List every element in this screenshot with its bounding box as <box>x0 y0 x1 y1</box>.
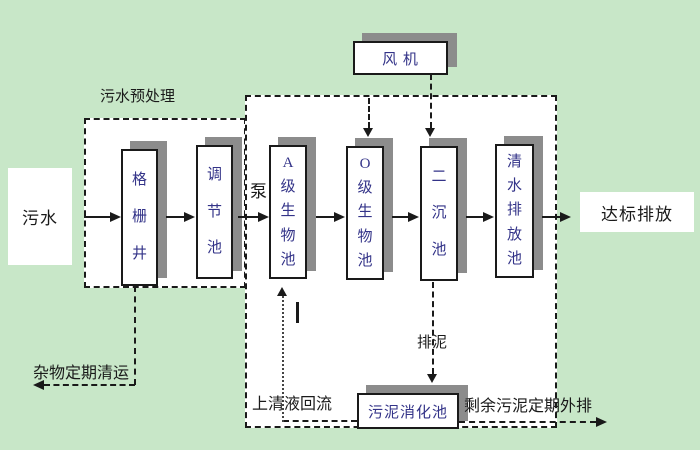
arrow-clarifier-to-cleanwater <box>466 216 483 218</box>
debris-removal-line-vertical <box>134 286 136 385</box>
influent-box: 污水 <box>8 168 72 265</box>
arrow-gridwell-to-regulating <box>166 216 184 218</box>
arrow-regulating-to-abio <box>238 216 258 218</box>
sludge-digestion-tank-box: 污泥消化池 <box>357 393 459 429</box>
a-bio-tank-box: A级生物池 <box>269 145 307 279</box>
o-bio-tank-box: O级生物池 <box>346 146 384 280</box>
fan-box: 风 机 <box>353 41 448 75</box>
arrow-clarifier-to-digestion <box>432 282 434 374</box>
arrow-influent-to-gridwell <box>84 216 110 218</box>
regulating-tank-box: 调节池 <box>196 145 233 279</box>
arrow-fan-to-obio <box>368 98 370 128</box>
arrow-cleanwater-to-discharge <box>542 216 560 218</box>
grid-well-box: 格栅井 <box>121 149 158 286</box>
compliant-discharge-box: 达标排放 <box>580 192 694 232</box>
clean-water-tank-box: 清水排放池 <box>495 144 534 278</box>
tick-mark <box>296 302 299 323</box>
debris-removal-label: 杂物定期清运 <box>33 365 129 383</box>
excess-sludge-arrow <box>459 421 596 423</box>
pretreatment-label: 污水预处理 <box>100 89 175 106</box>
wastewater-process-flow-diagram: 污水预处理 污水 达标排放 风 机 格栅井 调节池 A级生物池 O级生物池 二沉… <box>0 0 700 450</box>
supernatant-return-label: 上清液回流 <box>252 396 332 414</box>
arrow-fan-to-clarifier <box>430 74 432 128</box>
pump-label: 泵 <box>250 183 267 202</box>
arrow-abio-to-obio <box>316 216 334 218</box>
excess-sludge-label: 剩余污泥定期外排 <box>464 398 592 416</box>
arrow-obio-to-clarifier <box>392 216 408 218</box>
secondary-clarifier-box: 二沉池 <box>420 146 458 281</box>
supernatant-return-line-horizontal <box>283 420 357 422</box>
sludge-out-label: 排泥 <box>417 335 447 352</box>
debris-removal-arrow <box>44 384 135 386</box>
